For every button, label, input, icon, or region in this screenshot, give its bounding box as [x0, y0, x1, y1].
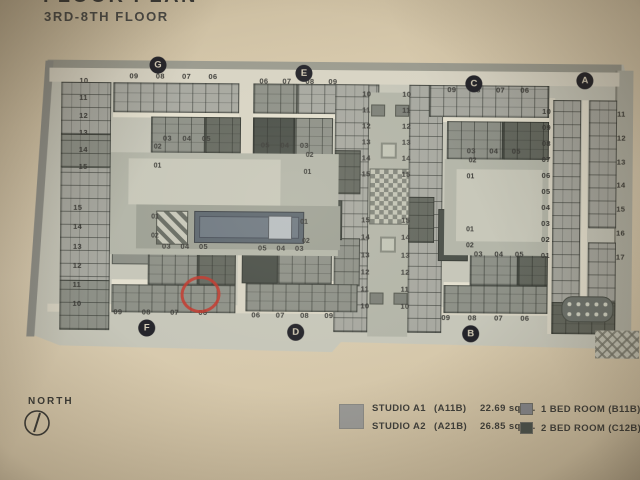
legend-code: (A21B) [434, 421, 480, 432]
legend-name: 2 BED ROOM (C12B) [541, 423, 640, 434]
axis-left-top: 101112131415 [79, 77, 89, 171]
planter-box [371, 104, 385, 116]
section-marker-a: A [576, 72, 593, 89]
unit-number-label: 15 [401, 217, 410, 225]
one-bed-swatch [520, 403, 533, 415]
legend-name: 1 BED ROOM (B11B) [541, 404, 640, 415]
studio-legend-rows: STUDIO A1 (A11B) 22.69 sq.m. STUDIO A2 (… [372, 403, 536, 432]
unit-number-label: 12 [79, 111, 88, 119]
unit-number-label: 06 [251, 311, 260, 319]
unit-number-label: 14 [402, 155, 411, 163]
wing-c-inner-row: 030405 [467, 147, 521, 155]
unit-number-label: 05 [515, 251, 524, 259]
legend-name: STUDIO A2 [372, 421, 434, 432]
spa-pool [561, 296, 613, 322]
unit-number-label: 02 [541, 236, 550, 244]
unit-number-label: 08 [142, 308, 151, 316]
building-block [587, 242, 616, 302]
unit-number-label: 12 [401, 269, 410, 277]
unit-number-label: 14 [401, 234, 410, 242]
unit-number-label: 04 [489, 147, 498, 155]
unit-number-label: 15 [361, 216, 370, 224]
unit-number-label: 14 [73, 223, 82, 231]
building-block [253, 83, 297, 113]
unit-number-label: 06 [520, 87, 529, 95]
unit-number-label: 16 [616, 229, 625, 237]
section-marker-g: G [149, 57, 166, 74]
unit-number-label: 06 [542, 172, 551, 180]
wing-g-unit-02: 02 [154, 144, 162, 151]
building-block [443, 285, 547, 314]
wing-g-inner-row: 030405 [163, 135, 211, 143]
unit-number-label: 07 [542, 156, 551, 164]
unit-number-label: 10 [72, 300, 81, 308]
wing-g-unit-01: 01 [154, 163, 162, 170]
axis-left-bottom: 151413121110 [72, 204, 82, 308]
unit-number-label: 15 [362, 171, 371, 179]
unit-number-label: 06 [259, 77, 268, 85]
courtyard-lawn [128, 158, 280, 205]
wing-b-unit-02: 02 [466, 242, 474, 249]
legend-name: STUDIO A1 [372, 403, 434, 414]
unit-number-label: 14 [361, 234, 370, 242]
wing-d-inner-row: 050403 [258, 244, 304, 252]
legend-row-1bed: 1 BED ROOM (B11B) 28.86 [520, 403, 640, 415]
wing-f-unit-02: 02 [151, 233, 159, 240]
building-block [295, 118, 333, 156]
unit-number-label: 05 [541, 188, 550, 196]
unit-number-label: 07 [494, 315, 503, 323]
unit-number-label: 09 [441, 314, 450, 322]
unit-number-label: 07 [170, 309, 179, 317]
wing-e-inner-row: 050403 [261, 141, 309, 149]
unit-number-label: 08 [542, 140, 551, 148]
wing-c-top-numbers: 09080706 [447, 86, 529, 94]
unit-number-label: 17 [616, 253, 625, 261]
wing-a-left-numbers: 10090807060504030201 [541, 108, 551, 260]
wing-d-unit-01: 01 [300, 219, 308, 226]
legend-row-studio-a1: STUDIO A1 (A11B) 22.69 sq.m. [372, 403, 536, 414]
section-marker-b: B [462, 325, 479, 342]
wing-g-top-numbers: 09080706 [129, 72, 217, 80]
compass-icon [22, 407, 54, 439]
north-compass: NORTH [22, 396, 74, 444]
unit-number-label: 15 [616, 206, 625, 214]
unit-number-label: 09 [324, 312, 333, 320]
unit-number-label: 08 [156, 73, 165, 81]
unit-number-label: 09 [328, 78, 337, 86]
unit-number-label: 11 [73, 281, 82, 289]
building-blocks [2, 0, 640, 3]
unit-number-label: 03 [474, 250, 483, 258]
hatched-deck-area [156, 211, 188, 245]
unit-number-label: 03 [162, 243, 171, 251]
building-block [253, 117, 295, 155]
unit-number-label: 10 [402, 91, 411, 99]
unit-number-label: 03 [467, 147, 476, 155]
unit-number-label: 13 [402, 139, 411, 147]
photographed-floor-plan-page: FLOOR PLAN 3RD-8TH FLOOR G E C A F [0, 0, 640, 480]
unit-number-label: 12 [73, 262, 82, 270]
unit-number-label: 09 [447, 86, 456, 94]
unit-number-label: 10 [79, 77, 88, 85]
wing-f-unit-01: 01 [151, 214, 159, 221]
unit-number-label: 11 [361, 286, 370, 294]
unit-number-label: 04 [541, 204, 550, 212]
unit-number-label: 03 [163, 135, 172, 143]
studio-swatch [339, 404, 364, 429]
core-left-bottom-numbers: 151413121110 [360, 216, 370, 310]
unit-number-label: 11 [401, 286, 410, 294]
unit-number-label: 06 [520, 315, 529, 323]
legend-row-studio-a2: STUDIO A2 (A21B) 26.85 sq.m. [372, 421, 536, 432]
core-right-top-numbers: 101112131415 [402, 91, 412, 179]
unit-number-label: 11 [79, 94, 88, 102]
building-block [408, 197, 434, 243]
unit-number-label: 13 [361, 251, 370, 259]
unit-number-label: 10 [400, 303, 409, 311]
unit-number-label: 05 [261, 141, 270, 149]
unit-number-label: 05 [258, 244, 267, 252]
unit-number-label: 12 [361, 268, 370, 276]
wing-f-inner-row: 030405 [162, 243, 208, 251]
unit-number-label: 12 [362, 123, 371, 131]
wing-a-right-numbers: 11121314151617 [616, 111, 626, 261]
jacuzzi-pool [268, 216, 292, 240]
unit-number-label: 11 [617, 111, 626, 119]
garden-pavilion [381, 143, 397, 159]
unit-number-label: 10 [360, 303, 369, 311]
unit-number-label: 04 [180, 243, 189, 251]
bedroom-legend-rows: 1 BED ROOM (B11B) 28.86 2 BED ROOM (C12B… [520, 403, 640, 434]
unit-number-label: 10 [362, 90, 371, 98]
unit-number-label: 05 [199, 243, 208, 251]
unit-number-label: 04 [280, 142, 289, 150]
unit-number-label: 14 [362, 155, 371, 163]
unit-number-label: 09 [113, 308, 122, 316]
unit-number-label: 05 [202, 135, 211, 143]
unit-number-label: 14 [79, 146, 88, 154]
unit-number-label: 15 [79, 163, 88, 171]
unit-number-label: 03 [300, 142, 309, 150]
legend-row-2bed: 2 BED ROOM (C12B) 46.24 [520, 422, 640, 434]
unit-number-label: 03 [541, 220, 550, 228]
unit-number-label: 12 [402, 123, 411, 131]
unit-number-label: 14 [616, 182, 625, 190]
wing-c-unit-02: 02 [469, 157, 477, 164]
unit-number-label: 15 [73, 204, 82, 212]
unit-number-label: 06 [208, 73, 217, 81]
unit-number-label: 03 [295, 245, 304, 253]
unit-number-label: 11 [402, 107, 411, 115]
section-marker-f: F [138, 319, 155, 336]
hatched-ramp [595, 330, 639, 358]
wing-b-unit-01: 01 [466, 226, 474, 233]
unit-number-label: 01 [541, 252, 550, 260]
building-block [588, 100, 617, 228]
wing-e-unit-01: 01 [304, 169, 312, 176]
unit-number-label: 13 [362, 139, 371, 147]
unit-number-label: 04 [494, 251, 503, 259]
unit-number-label: 11 [362, 106, 371, 114]
unit-number-label: 15 [402, 171, 411, 179]
unit-number-label: 07 [496, 87, 505, 95]
unit-number-label: 09 [129, 72, 138, 80]
core-left-top-numbers: 101112131415 [362, 90, 372, 178]
unit-number-label: 10 [542, 108, 551, 116]
unit-number-label: 07 [182, 73, 191, 81]
section-marker-c: C [465, 75, 482, 92]
core-right-bottom-numbers: 151413121110 [400, 217, 410, 311]
unit-number-label: 07 [282, 78, 291, 86]
planter-box [369, 292, 383, 304]
unit-number-label: 13 [73, 242, 82, 250]
two-bed-swatch [520, 422, 533, 434]
wing-b-inner-row: 030405 [474, 250, 524, 258]
unit-number-label: 13 [401, 251, 410, 259]
wing-e-unit-02: 02 [306, 152, 314, 159]
garden-pavilion [380, 237, 396, 253]
unit-number-label: 04 [276, 245, 285, 253]
wing-c-unit-01: 01 [467, 173, 475, 180]
unit-number-label: 08 [468, 314, 477, 322]
unit-number-label: 05 [512, 148, 521, 156]
unit-number-label: 07 [276, 312, 285, 320]
unit-number-label: 08 [300, 312, 309, 320]
section-marker-d: D [287, 324, 304, 341]
unit-number-label: 04 [182, 135, 191, 143]
wing-b-bottom-numbers: 09080706 [441, 314, 529, 322]
north-label: NORTH [28, 396, 74, 407]
building-block [245, 283, 357, 312]
unit-number-label: 12 [617, 134, 626, 142]
unit-number-label: 13 [79, 129, 88, 137]
unit-number-label: 13 [617, 158, 626, 166]
building-block [113, 82, 239, 113]
section-marker-e: E [295, 65, 312, 82]
unit-number-label: 09 [542, 124, 551, 132]
building-block [278, 252, 332, 284]
legend-code: (A11B) [434, 403, 480, 414]
wing-d-bottom-numbers: 06070809 [251, 311, 333, 319]
building-block [59, 280, 109, 330]
